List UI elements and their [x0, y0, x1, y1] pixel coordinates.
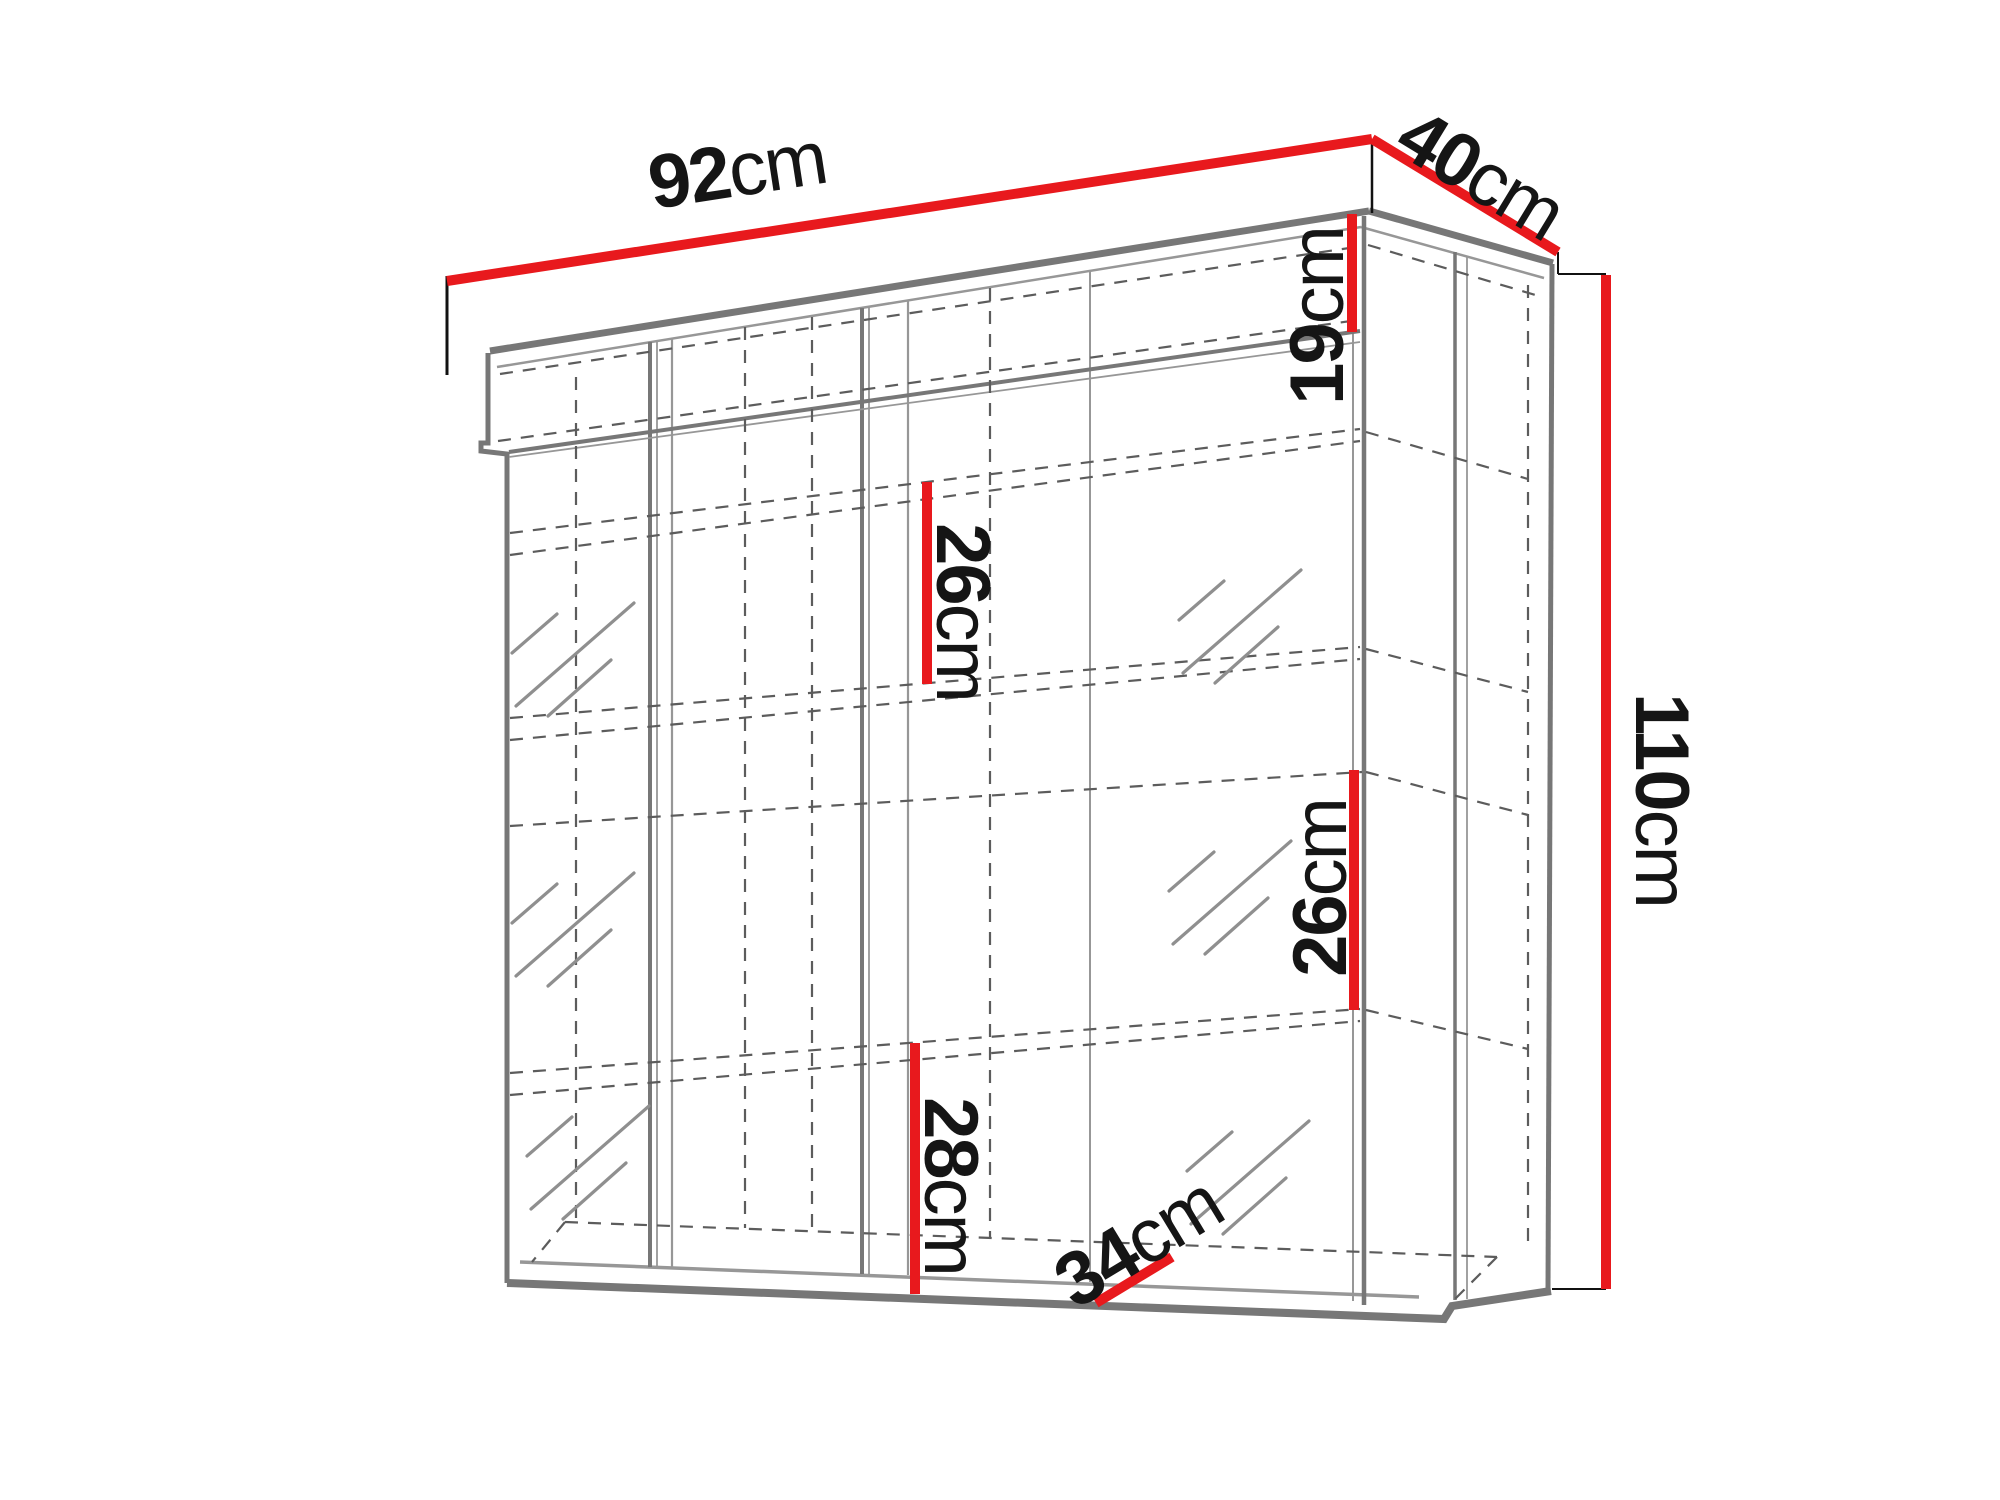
hidden-side-shelf-3	[1366, 772, 1528, 815]
dimension-labels: 92cm 40cm 110cm 19cm 26cm 28cm 26cm 34cm	[643, 91, 1705, 1324]
top-front-inner-edge	[497, 227, 1361, 367]
dimension-line-width	[447, 139, 1372, 281]
hidden-top-back-edge	[500, 247, 1356, 374]
dimension-label-interior-depth: 34cm	[1040, 1160, 1236, 1325]
cabinet-outline	[481, 211, 1553, 1319]
hidden-side-shelf-4	[1366, 1010, 1528, 1049]
hidden-floor-back	[565, 1222, 1497, 1257]
hidden-side-shelf-2	[1366, 649, 1528, 692]
left-edge	[481, 353, 507, 1283]
diagram-canvas: 92cm 40cm 110cm 19cm 26cm 28cm 26cm 34cm	[0, 0, 2000, 1500]
glass-hatch-left-middle	[512, 873, 634, 986]
glass-hatch-left-bottom	[527, 1106, 649, 1219]
hidden-shelf-1a	[510, 429, 1360, 533]
dimension-label-height: 110cm	[1620, 693, 1705, 907]
back-right-edge	[1548, 264, 1552, 1291]
hidden-shelf-4a	[510, 1009, 1360, 1073]
dimension-label-depth: 40cm	[1383, 91, 1579, 256]
hidden-shelf-3	[510, 772, 1362, 826]
glass-hatch-left-top	[512, 603, 634, 716]
hidden-floor-left	[532, 1222, 565, 1262]
top-front-edge	[490, 211, 1369, 351]
top-compartment-shelf-edge	[509, 331, 1360, 452]
hidden-floor-right	[1452, 1257, 1497, 1302]
cabinet-dimension-diagram: 92cm 40cm 110cm 19cm 26cm 28cm 26cm 34cm	[0, 0, 2000, 1500]
hidden-shelf-4b	[510, 1021, 1360, 1095]
hidden-interior-lines	[498, 245, 1542, 1302]
dimension-label-bottom-compartment: 28cm	[909, 1097, 994, 1275]
dimension-label-center-shelf: 26cm	[921, 523, 1006, 701]
glass-hatch-right-top	[1179, 570, 1301, 683]
dimension-lines	[447, 139, 1606, 1303]
glass-hatch-right-middle	[1169, 841, 1291, 954]
dimension-label-top-compartment: 19cm	[1275, 227, 1360, 405]
dimension-label-right-shelf: 26cm	[1278, 799, 1363, 977]
hidden-side-shelf-1	[1366, 432, 1528, 479]
bottom-edge	[507, 1283, 1551, 1319]
dimension-label-width: 92cm	[643, 115, 832, 226]
hidden-compartment-bottom	[498, 320, 1358, 441]
top-compartment-shelf-edge-2	[509, 342, 1360, 457]
